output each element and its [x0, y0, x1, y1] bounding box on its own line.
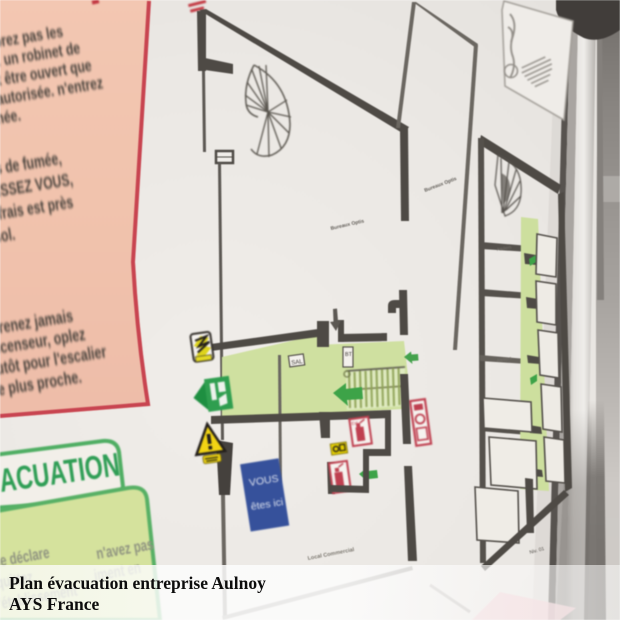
svg-text:Ext.: Ext.: [351, 420, 359, 426]
svg-text:BT: BT: [345, 352, 353, 358]
